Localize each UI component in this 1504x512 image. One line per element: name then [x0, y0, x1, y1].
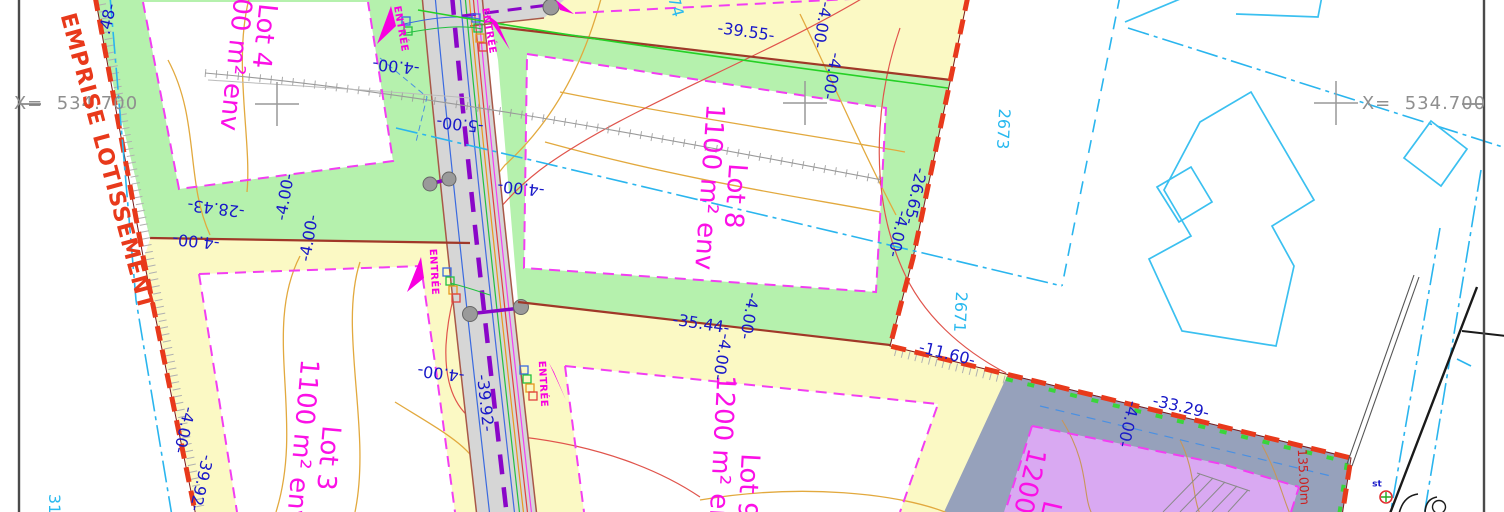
parcel-number: 31 — [46, 494, 62, 512]
dimension-label: -4.00- — [885, 209, 910, 258]
dimension-label: -39.92- — [474, 374, 496, 433]
parcel-number: 2671 — [951, 291, 969, 333]
parcel-number: 2673 — [994, 108, 1012, 150]
entrance-label: ENTRÉE — [391, 5, 409, 52]
dimension-label: -4.00- — [297, 213, 321, 262]
emprise-boundary-label: EMPRISE LOTISSEMENT — [56, 11, 157, 313]
dimension-label: -33.29- — [1151, 393, 1210, 421]
dimension-label: -4.00- — [1115, 399, 1141, 449]
dimension-label: -4.00- — [417, 362, 466, 384]
dimension-label: -5.00- — [436, 114, 485, 135]
entrance-label: ENTRÉE — [536, 361, 548, 408]
dimension-label: -39.55- — [716, 20, 775, 44]
dimension-label: -4.00- — [737, 291, 761, 340]
lot-label: 1200 m² env — [704, 374, 739, 512]
dimension-label: .48- — [97, 2, 120, 36]
lot-label: Lot 9 — [733, 453, 762, 512]
dimension-label: -4.00- — [171, 405, 197, 455]
length-annotation: 135.00m — [1295, 449, 1310, 505]
dimension-label: -4.00- — [273, 172, 297, 221]
dimension-label: -11.60- — [917, 339, 977, 368]
dimension-label: -4.00- — [820, 51, 844, 100]
entrance-label: ENTRÉE — [479, 7, 497, 54]
labels-layer: X= 534.700X= 534.700EMPRISE LOTISSEMENTL… — [0, 0, 1504, 512]
dimension-label: -4.00- — [372, 56, 421, 77]
parcel-number: 2674 — [660, 0, 686, 19]
site-plan: X= 534.700X= 534.700EMPRISE LOTISSEMENTL… — [0, 0, 1504, 512]
dimension-label: -4.00- — [810, 0, 834, 49]
dimension-label: -4.00- — [172, 231, 221, 252]
st-annotation: st — [1372, 481, 1382, 490]
coordinate-label: X= 534.700 — [1362, 95, 1486, 113]
lot-label: 1100 m² env — [690, 103, 728, 271]
dimension-label: -28.43- — [187, 197, 246, 220]
dimension-label: -4.00- — [710, 332, 734, 381]
dimension-label: -4.00- — [497, 178, 546, 199]
entrance-label: ENTRÉE — [427, 249, 439, 296]
dimension-label: -39.92- — [187, 453, 215, 512]
